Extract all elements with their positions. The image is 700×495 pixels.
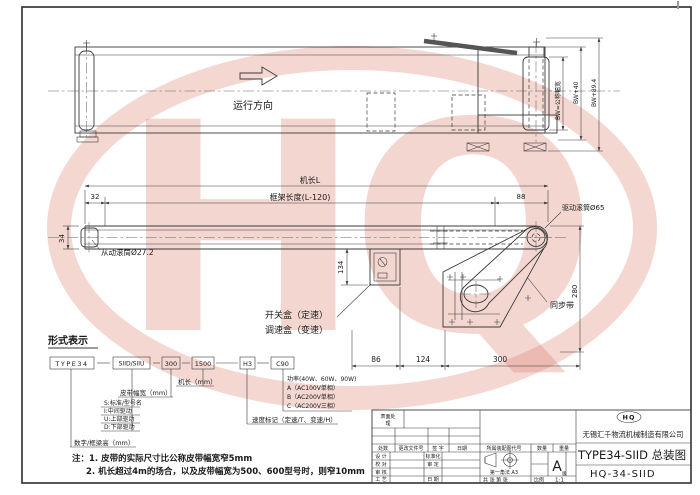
frame-height-label: 数字/框梁高（mm） — [74, 438, 134, 447]
designation-box-speed: H3 — [243, 360, 252, 368]
drawing-number: HQ-34-SIID — [590, 469, 656, 480]
dim-34: 34 — [58, 234, 66, 243]
designation-box-drive: SIID/SIIU — [119, 361, 145, 368]
driven-roller-label: 从动滚筒Ø27.2 — [101, 247, 154, 257]
drive-code-i: I:中间驱动 — [104, 407, 132, 415]
scale-label: 比例 — [534, 477, 544, 484]
watermark-text: HQ — [119, 62, 585, 399]
company-name: 无锡汇千物流机械制造有限公司 — [583, 430, 684, 439]
belt-width-label: 皮带幅宽（mm） — [120, 388, 172, 397]
dim-86: 86 — [371, 355, 381, 364]
revision-letter: A — [552, 459, 562, 475]
switch-box-label: 开关盒（定速） — [265, 309, 328, 321]
row-process: 工 艺 — [375, 477, 387, 483]
dim-124: 124 — [416, 355, 431, 364]
weight-label: 重量 — [559, 445, 569, 452]
speed-mark-label: 速度标记（定速/T、变速/H） — [252, 415, 337, 424]
sheet-label: 共 张 第 张 — [483, 477, 508, 484]
surface-treatment-label-2: 理 — [385, 421, 390, 427]
dim-bw-label: BW=公称幅宽 — [554, 81, 562, 120]
row-check: 校 对 — [375, 461, 387, 468]
drive-code-u: U:上部驱动 — [104, 415, 134, 423]
power-line-c: C（AC200V三相） — [287, 402, 339, 410]
designation-box-type: TYPE34 — [54, 360, 88, 368]
drawing-canvas: HQ — [0, 0, 700, 495]
dim-300: 300 — [493, 355, 508, 364]
dim-280: 280 — [571, 285, 579, 298]
surface-treatment-label: 表面处 — [380, 413, 395, 420]
col-signature: 签 字 — [432, 445, 444, 452]
speed-box-label: 调速盒（变速） — [265, 324, 328, 336]
assembly-code-label: 所属装配图代号 — [486, 445, 521, 452]
row-design: 设 计 — [375, 453, 387, 460]
dim-134: 134 — [337, 260, 345, 274]
row-approval: 审 定 — [427, 461, 439, 468]
designation-box-length: 1500 — [195, 360, 212, 368]
col-revisions: 处数 — [378, 445, 388, 452]
qty-label: 数量 — [537, 445, 547, 452]
dim-machine-length: 机长L — [300, 175, 321, 185]
power-line-0: 功率(40W、60W、90W) — [287, 375, 356, 383]
drive-code-d: D:下部驱动 — [104, 423, 135, 431]
designation-box-width: 300 — [165, 360, 177, 368]
direction-label: 运行方向 — [233, 99, 273, 112]
note-line-2: 2. 机长超过4m的场合，以及皮带幅宽为500、600型号时，则窄10mm — [86, 466, 365, 477]
drive-roller-label: 驱动滚筒Ø65 — [562, 203, 604, 212]
dim-88: 88 — [517, 193, 526, 201]
col-change-doc: 更改文件号 — [398, 445, 423, 452]
row-date: 日 期 — [427, 477, 439, 483]
scale-value: 1:1 — [555, 478, 564, 484]
col-date: 日期 — [457, 446, 467, 452]
sync-belt-label: 同步带 — [550, 301, 574, 310]
company-logo-text: HQ — [623, 414, 636, 422]
row-review: 审 核 — [375, 469, 387, 476]
drive-code-s: S:标准/型号名 — [104, 399, 142, 407]
revision-suffix: 版 — [562, 470, 567, 477]
power-line-b: B（AC200V单相） — [287, 393, 339, 401]
row-standardization: 标准化 — [425, 453, 440, 460]
note-line-1: 注：1. 皮带的实际尺寸比公称皮带幅宽窄5mm — [72, 453, 252, 464]
dim-bw894-label: BW+89.4 — [591, 79, 598, 107]
power-line-a: A（AC100V单相） — [287, 384, 339, 392]
machine-length-label: 机长（mm） — [178, 377, 217, 386]
dim-frame-length: 框架长度(L-120) — [270, 192, 331, 202]
projection-label: 第一角法 A3 — [490, 469, 518, 476]
designation-title: 形式表示 — [48, 334, 88, 347]
drawing-title: TYPE34-SIID 总装图 — [577, 448, 686, 462]
dim-32: 32 — [91, 193, 100, 201]
designation-box-power: C90 — [276, 360, 289, 368]
dim-bw40-label: BW+40 — [573, 81, 580, 104]
